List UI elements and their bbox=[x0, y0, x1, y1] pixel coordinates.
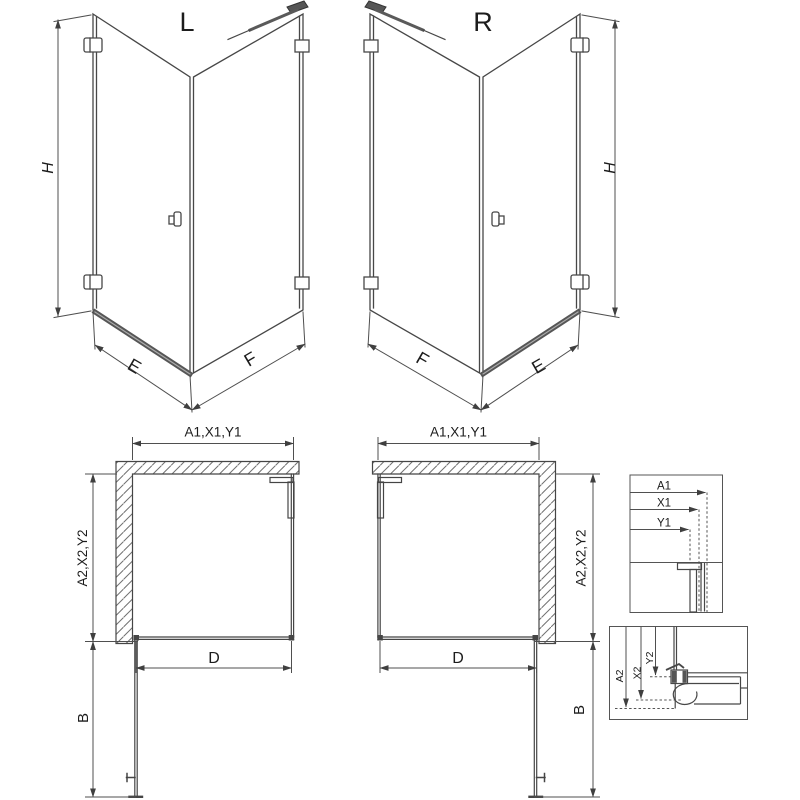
detail-tray-profile-box bbox=[610, 627, 748, 720]
plan-right-door-dim-label: D bbox=[452, 650, 464, 667]
wall-profile-section bbox=[678, 563, 705, 612]
plan-left-top-dim-label: A1,X1,Y1 bbox=[184, 425, 241, 440]
plan-left-view bbox=[85, 437, 299, 797]
shower-enclosure-diagram: L R H H E F F E A1,X1,Y1 A2,X2,Y2 D B A1… bbox=[0, 0, 800, 800]
iso-right-title: R bbox=[473, 7, 493, 37]
plan-left-swing-dim-label: B bbox=[75, 713, 92, 723]
detail-x1-label: X1 bbox=[657, 498, 671, 510]
plan-right-dimensions bbox=[378, 437, 600, 797]
iso-right-panel-width-label: F bbox=[413, 348, 433, 371]
iso-right-height-label: H bbox=[602, 162, 619, 174]
glass-and-clamp-section bbox=[666, 627, 688, 709]
plan-right-top-dim-label: A1,X1,Y1 bbox=[430, 425, 487, 440]
plan-right-side-dim-label: A2,X2,Y2 bbox=[574, 529, 589, 586]
wall-hatch bbox=[373, 462, 556, 644]
iso-left-view bbox=[54, 1, 309, 412]
iso-left-title: L bbox=[179, 7, 194, 37]
plan-right-swing-dim-label: B bbox=[571, 705, 588, 715]
detail-a1-label: A1 bbox=[657, 481, 671, 493]
plan-left-door-dim-label: D bbox=[208, 650, 220, 667]
iso-right-view bbox=[364, 1, 619, 412]
detail-wall-profile-box bbox=[630, 475, 723, 613]
iso-left-panel-width-label: F bbox=[241, 348, 261, 371]
detail-x2-label: X2 bbox=[632, 666, 644, 679]
detail-y1-label: Y1 bbox=[657, 518, 671, 530]
detail-box-border bbox=[630, 475, 723, 613]
wall-hatch bbox=[116, 462, 299, 644]
detail-a2-label: A2 bbox=[614, 669, 626, 682]
iso-left-door-width-label: E bbox=[124, 354, 144, 377]
plan-left-side-dim-label: A2,X2,Y2 bbox=[75, 529, 90, 586]
detail-y2-label: Y2 bbox=[644, 651, 656, 664]
plan-right-view bbox=[373, 437, 601, 797]
technical-drawing-page: L R H H E F F E A1,X1,Y1 A2,X2,Y2 D B A1… bbox=[0, 0, 800, 800]
iso-left-height-label: H bbox=[40, 162, 57, 174]
